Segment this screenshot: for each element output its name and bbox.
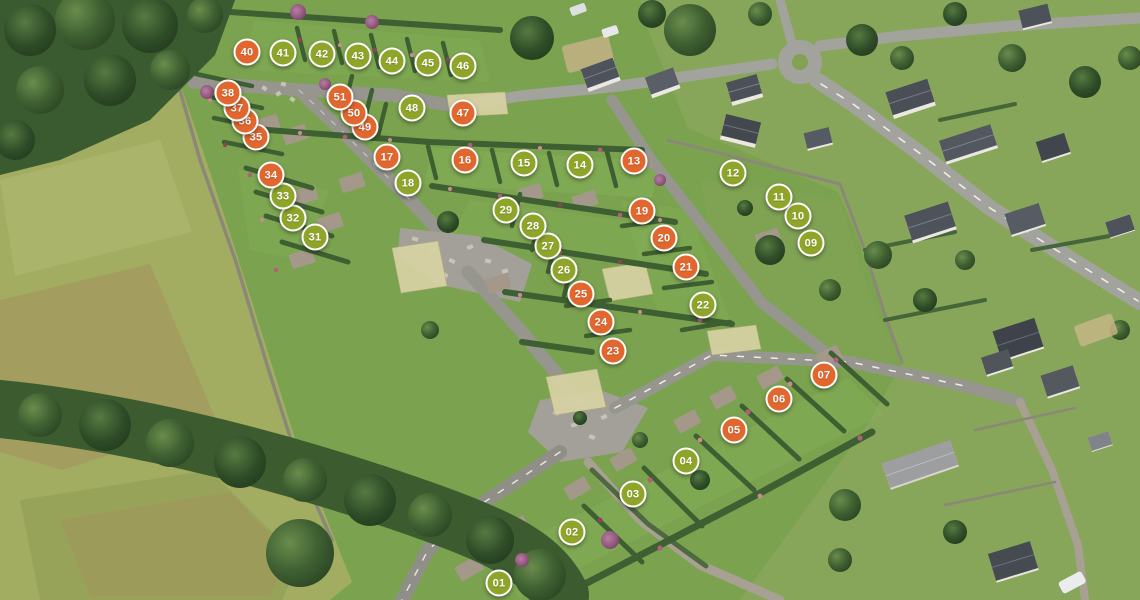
plot-marker-40[interactable]: 40 bbox=[234, 39, 261, 66]
plot-marker-14[interactable]: 14 bbox=[567, 152, 594, 179]
plot-marker-03[interactable]: 03 bbox=[620, 481, 647, 508]
plot-marker-29[interactable]: 29 bbox=[493, 197, 520, 224]
plot-marker-51[interactable]: 51 bbox=[327, 84, 354, 111]
plot-marker-22[interactable]: 22 bbox=[690, 292, 717, 319]
plot-marker-31[interactable]: 31 bbox=[302, 224, 329, 251]
plot-marker-01[interactable]: 01 bbox=[486, 570, 513, 597]
plot-marker-18[interactable]: 18 bbox=[395, 170, 422, 197]
plot-marker-21[interactable]: 21 bbox=[673, 254, 700, 281]
plot-marker-46[interactable]: 46 bbox=[450, 53, 477, 80]
plot-marker-10[interactable]: 10 bbox=[785, 203, 812, 230]
site-plan: 0102030405060709101112131415161718192021… bbox=[0, 0, 1140, 600]
plot-marker-07[interactable]: 07 bbox=[811, 362, 838, 389]
plot-marker-24[interactable]: 24 bbox=[588, 309, 615, 336]
plot-marker-19[interactable]: 19 bbox=[629, 198, 656, 225]
plot-marker-38[interactable]: 38 bbox=[215, 80, 242, 107]
plot-marker-23[interactable]: 23 bbox=[600, 338, 627, 365]
plot-marker-16[interactable]: 16 bbox=[452, 147, 479, 174]
plot-marker-47[interactable]: 47 bbox=[450, 100, 477, 127]
plot-marker-28[interactable]: 28 bbox=[520, 213, 547, 240]
plot-marker-12[interactable]: 12 bbox=[720, 160, 747, 187]
plot-marker-20[interactable]: 20 bbox=[651, 225, 678, 252]
plot-marker-13[interactable]: 13 bbox=[621, 148, 648, 175]
plot-marker-02[interactable]: 02 bbox=[559, 519, 586, 546]
plot-marker-26[interactable]: 26 bbox=[551, 257, 578, 284]
plot-marker-17[interactable]: 17 bbox=[374, 144, 401, 171]
plot-marker-25[interactable]: 25 bbox=[568, 281, 595, 308]
plot-marker-11[interactable]: 11 bbox=[766, 184, 793, 211]
plot-marker-43[interactable]: 43 bbox=[345, 43, 372, 70]
plot-marker-06[interactable]: 06 bbox=[766, 386, 793, 413]
plot-marker-45[interactable]: 45 bbox=[415, 50, 442, 77]
plot-marker-09[interactable]: 09 bbox=[798, 230, 825, 257]
plot-marker-04[interactable]: 04 bbox=[673, 448, 700, 475]
plot-marker-42[interactable]: 42 bbox=[309, 41, 336, 68]
plot-marker-34[interactable]: 34 bbox=[258, 162, 285, 189]
plot-marker-44[interactable]: 44 bbox=[379, 48, 406, 75]
plot-marker-41[interactable]: 41 bbox=[270, 40, 297, 67]
plot-marker-48[interactable]: 48 bbox=[399, 95, 426, 122]
plot-marker-05[interactable]: 05 bbox=[721, 417, 748, 444]
plot-marker-15[interactable]: 15 bbox=[511, 150, 538, 177]
